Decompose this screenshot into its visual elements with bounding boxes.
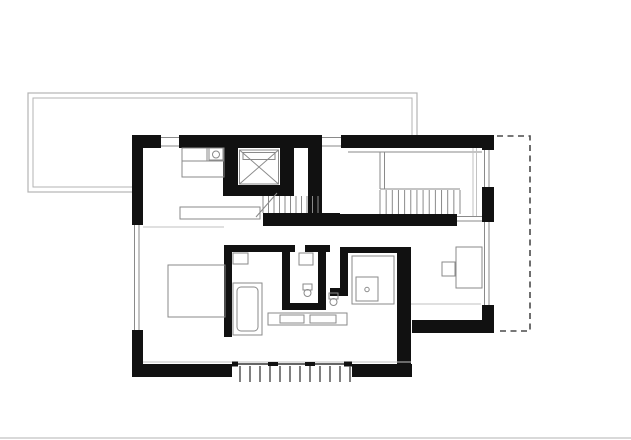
ext-wall-bottom-left — [132, 364, 232, 377]
bath-wall-right-vertical — [318, 252, 326, 303]
upper-rooms-divider-wall — [308, 148, 322, 214]
railing-mullion-2 — [268, 362, 278, 366]
extension-dashed-outline — [497, 136, 530, 331]
window-top-2 — [322, 134, 341, 149]
ext-wall-right-center-vertical — [397, 247, 411, 375]
ext-wall-right-top — [482, 140, 494, 150]
bath-wall-top-2 — [305, 245, 330, 252]
stair-lower-wall — [263, 213, 340, 226]
bath-wall-mid-vertical — [282, 252, 290, 310]
wc-niche-wall — [330, 288, 348, 296]
dashed-extension — [497, 136, 530, 331]
railing-mullion-4 — [344, 362, 352, 367]
railing-mullion-3 — [305, 362, 315, 366]
bath-wall-bottom — [282, 303, 326, 310]
spine-wall — [340, 214, 457, 226]
window-right-2 — [481, 222, 495, 305]
floor-plan-page — [0, 0, 631, 440]
shaft-wall-bottom — [223, 185, 294, 196]
shower-wall-left — [340, 247, 348, 295]
ext-wall-step — [412, 320, 494, 333]
window-top-1 — [161, 134, 179, 149]
elevator-shaft — [240, 150, 279, 184]
shower-wall-top — [340, 247, 397, 253]
window-right-1 — [481, 150, 495, 187]
ext-wall-left-upper — [132, 135, 143, 225]
ext-wall-top — [132, 135, 494, 148]
floor-plan-drawing — [0, 0, 631, 440]
railing-mullion-1 — [232, 362, 238, 367]
window-left — [131, 225, 144, 330]
ext-wall-right-mid — [482, 187, 494, 222]
bath-wall-top-1 — [224, 245, 295, 252]
